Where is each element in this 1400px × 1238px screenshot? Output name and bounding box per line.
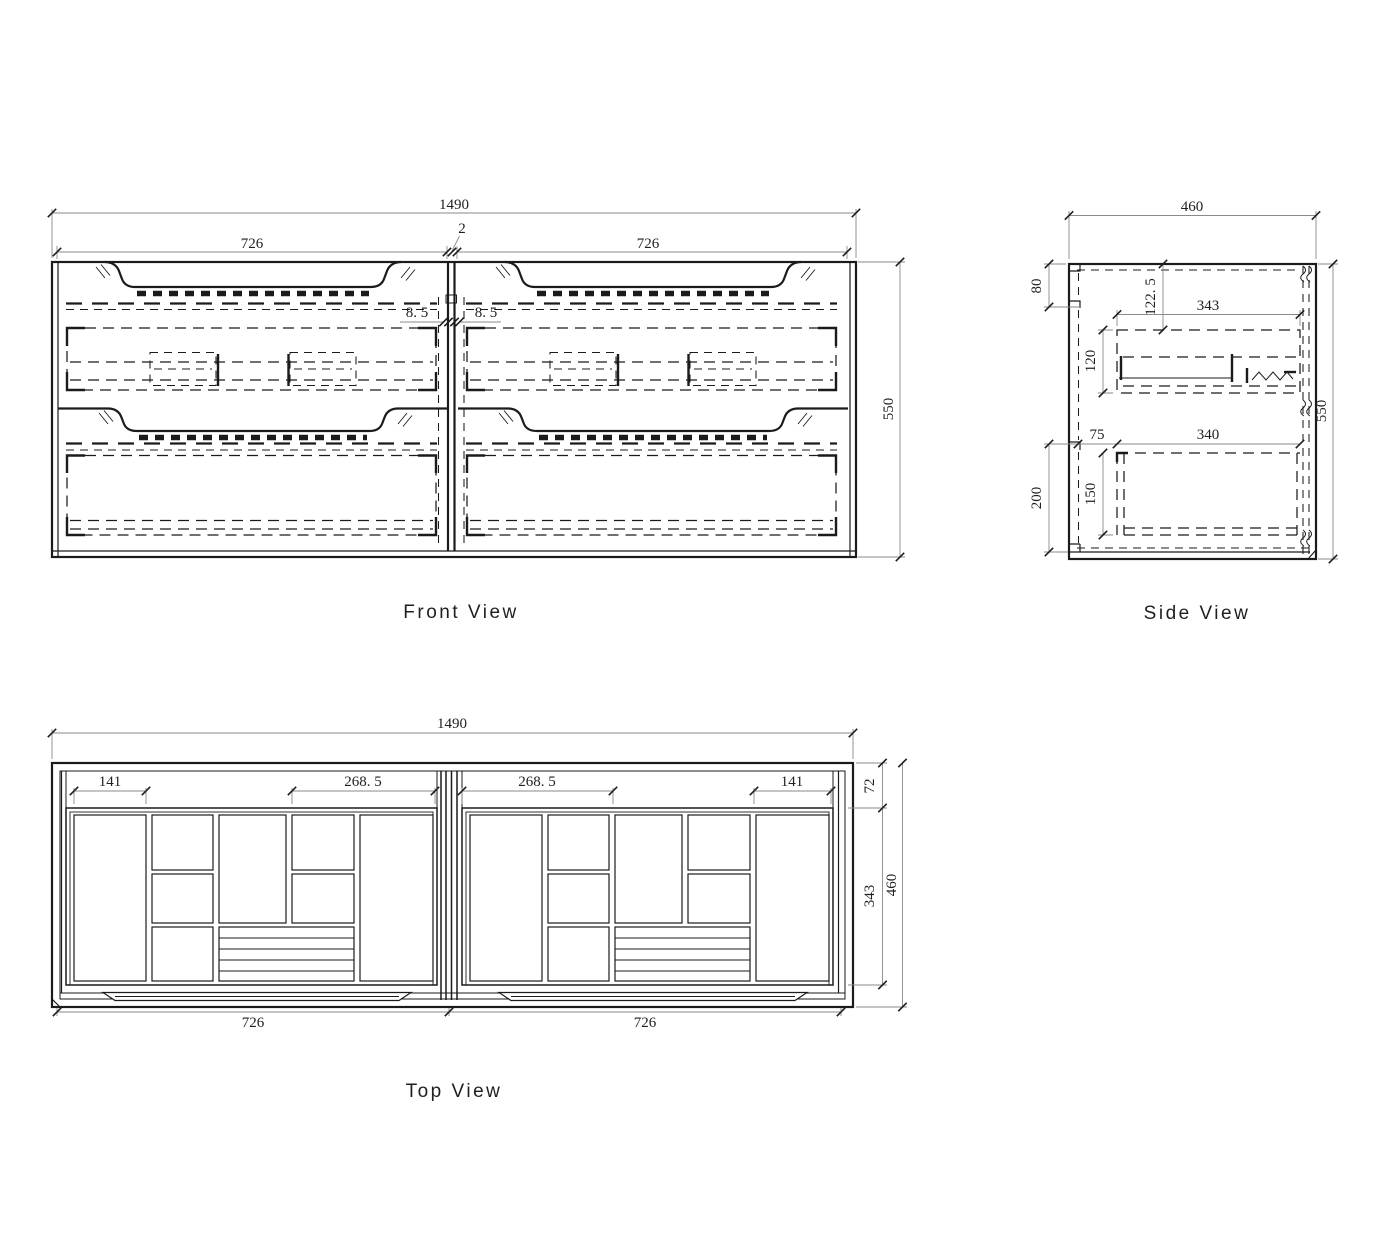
dim-side-front-clearance: 75 [1090,427,1105,443]
dim-side-top-drawer-depth: 343 [1197,298,1220,314]
dim-top-overall-depth: 460 [884,874,900,897]
front-view-top-drawer-right [466,262,837,390]
dim-side-top-drawer-height: 120 [1083,350,1099,373]
dim-side-rail-bottom: 200 [1029,487,1045,510]
dim-side-overall-height: 550 [1314,400,1330,423]
top-view: 1490 141 268. 5 268. 5 141 72 343 460 72… [48,716,907,1102]
dim-side-rail-top: 80 [1029,279,1045,294]
dim-top-overall-width: 1490 [437,716,467,732]
front-view-bottom-drawer-right [458,409,848,536]
dim-top-right-inner: 268. 5 [518,774,556,790]
front-view-title: Front View [403,602,518,623]
dim-side-bottom-drawer-depth: 340 [1197,427,1220,443]
dim-front-offset-right: 8. 5 [475,305,498,321]
front-view-carcass [52,262,856,557]
dim-top-tray-depth: 343 [862,885,878,908]
side-view-carcass [1069,264,1316,559]
side-view-title: Side View [1144,603,1251,624]
cabinet-technical-drawing: 1490 726 726 2 8. 5 8. 5 550 Front View [0,0,1400,1238]
side-view-dimensions: 460 80 122. 5 343 120 75 340 150 200 [1029,199,1338,563]
dim-side-top-to-drawer: 122. 5 [1143,278,1159,316]
dim-front-offset-left: 8. 5 [406,305,429,321]
dim-top-left-comp: 141 [99,774,122,790]
dim-top-basin-left: 726 [242,1015,265,1031]
dim-top-right-comp: 141 [781,774,804,790]
side-view: 460 80 122. 5 343 120 75 340 150 200 [1029,199,1338,624]
dim-top-left-inner: 268. 5 [344,774,382,790]
dim-side-overall-depth: 460 [1181,199,1204,215]
top-view-title: Top View [406,1081,503,1102]
front-view-dimensions: 1490 726 726 2 8. 5 8. 5 550 [48,197,905,561]
dim-top-basin-right: 726 [634,1015,657,1031]
front-view-top-drawer-left [66,262,437,390]
dim-front-center-gap: 2 [458,221,466,237]
dim-front-basin-left: 726 [241,236,264,252]
top-view-tray-right [462,771,833,1001]
dim-front-overall-width: 1490 [439,197,469,213]
front-view: 1490 726 726 2 8. 5 8. 5 550 Front View [48,197,905,623]
side-view-bottom-drawer [1117,453,1300,535]
dim-front-overall-height: 550 [881,398,897,421]
top-view-tray-left [66,771,437,1001]
side-view-top-drawer [1117,330,1300,393]
dim-front-basin-right: 726 [637,236,660,252]
dim-side-bottom-drawer-height: 150 [1083,483,1099,506]
dim-top-back-rim: 72 [862,779,878,794]
drawing-sheet: 1490 726 726 2 8. 5 8. 5 550 Front View [0,0,1400,1238]
front-view-bottom-drawer-left [58,409,448,536]
